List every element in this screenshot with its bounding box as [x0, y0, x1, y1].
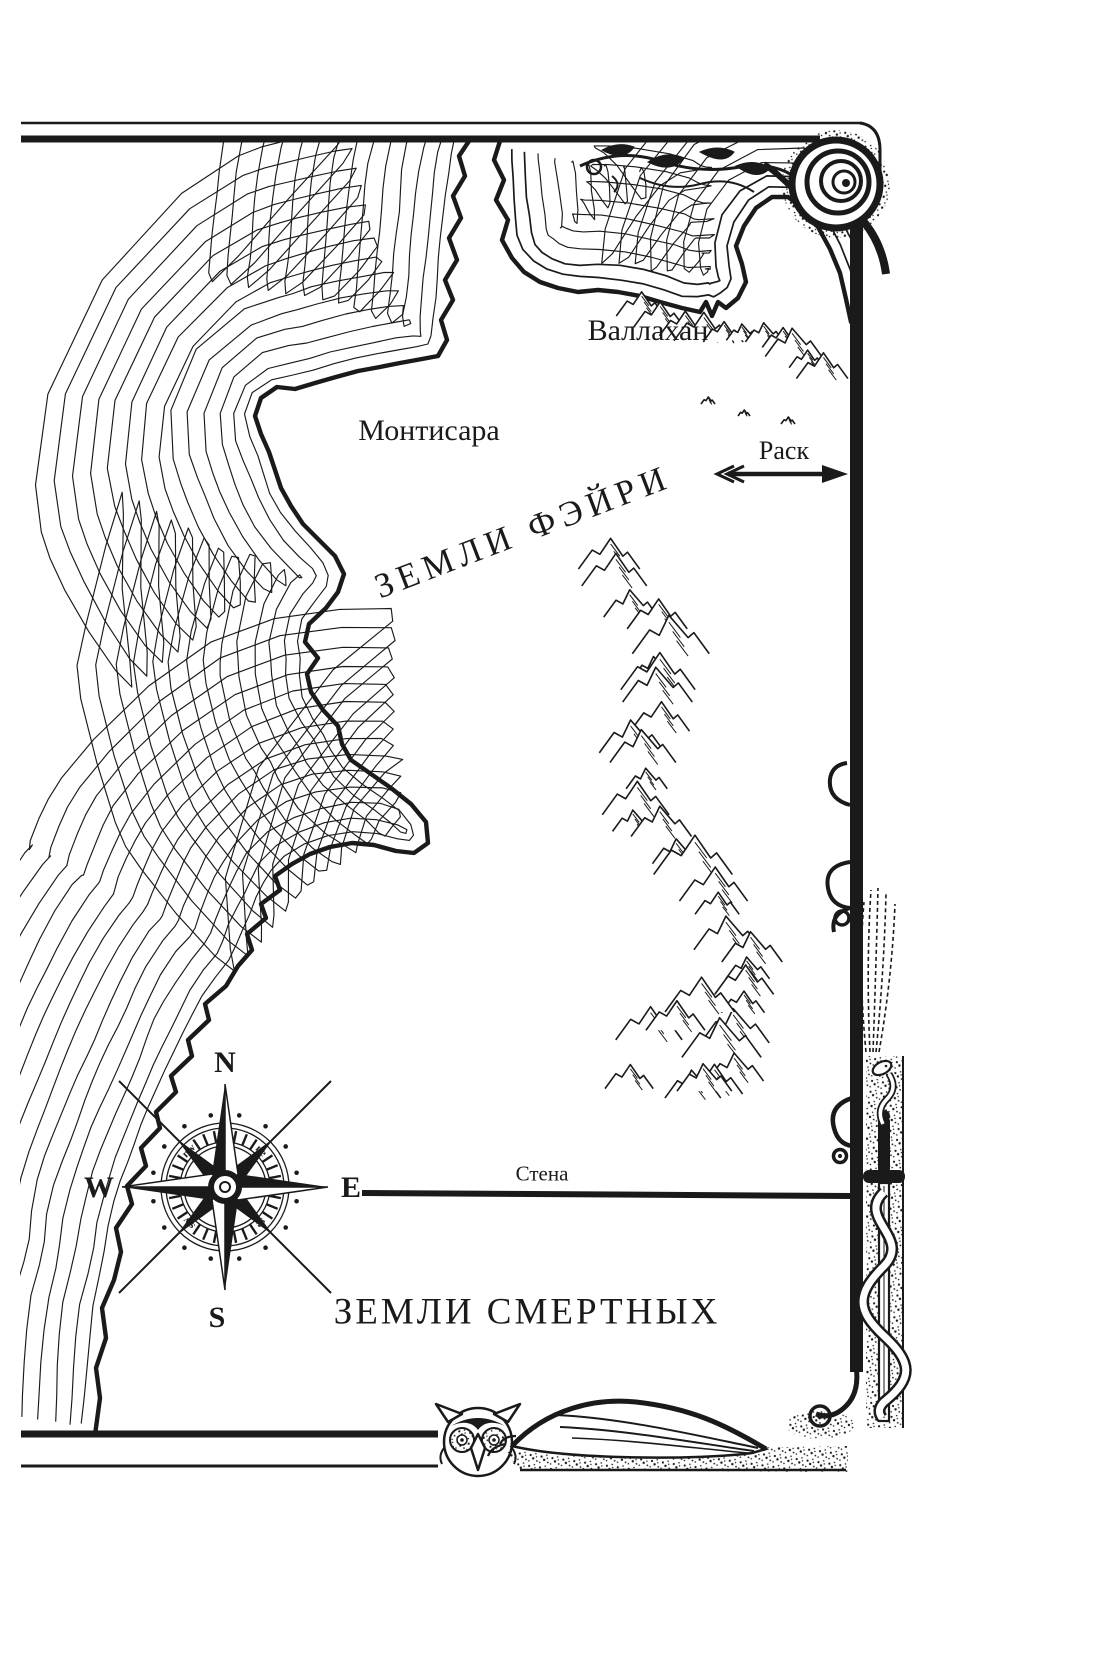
fantasy-map-page: nw ne se sw N S W E — [0, 0, 1100, 1669]
compass-rose: nw ne se sw N S W E — [84, 1046, 361, 1334]
compass-letter-s: S — [209, 1301, 226, 1334]
wall-label: Стена — [516, 1162, 569, 1187]
compass-letter-n: N — [214, 1046, 236, 1079]
place-label-rask: Раск — [759, 436, 809, 466]
map-artwork: nw ne se sw N S W E — [0, 0, 1100, 1669]
wing-icon — [488, 1401, 848, 1472]
owl-icon — [436, 1404, 520, 1476]
place-label-vallahan: Валлахан — [588, 314, 709, 348]
place-label-montisara: Монтисара — [358, 414, 499, 448]
compass-letter-e: E — [341, 1171, 361, 1204]
corner-curl-ornament — [786, 1366, 857, 1439]
wall-line — [362, 1193, 851, 1196]
compass-letter-w: W — [84, 1171, 114, 1204]
corner-volute-ornament — [764, 130, 890, 274]
coastline-contours — [0, 55, 991, 1436]
compass-hub-inner — [220, 1182, 230, 1192]
border-frame — [21, 123, 880, 1466]
mountain-ranges — [578, 292, 847, 1100]
sword-snake-ornament — [863, 1056, 906, 1428]
region-label-mortal-lands: ЗЕМЛИ СМЕРТНЫХ — [334, 1291, 721, 1334]
rask-arrow-icon — [717, 465, 848, 483]
